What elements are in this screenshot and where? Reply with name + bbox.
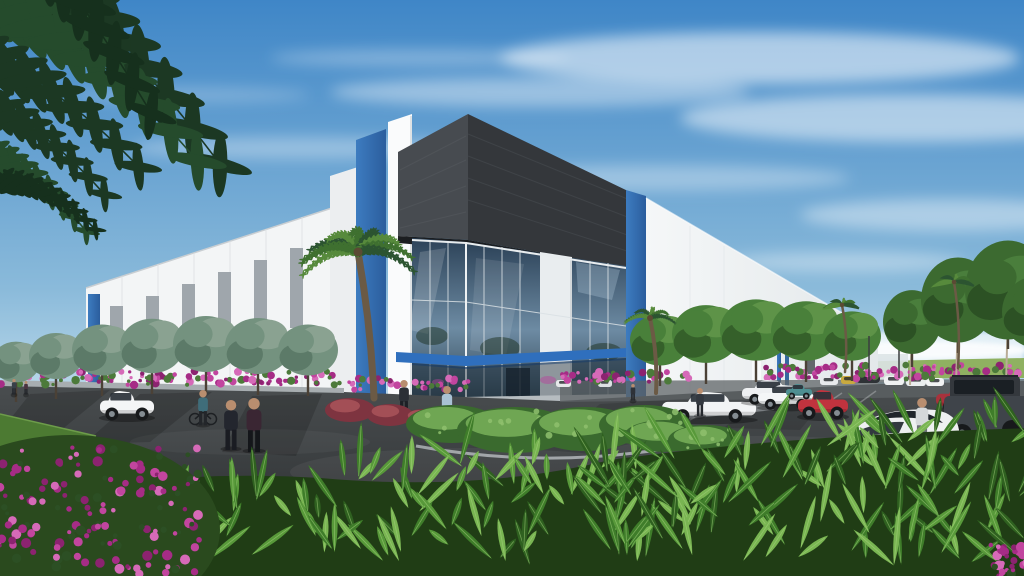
bougainvillea-hedge — [359, 376, 366, 383]
rendering-canvas — [0, 0, 1024, 576]
shrub-speckle — [438, 431, 441, 434]
bougainvillea-hedge — [295, 375, 298, 378]
shrub-speckle — [686, 446, 689, 449]
bougainvillea-bloom — [84, 505, 90, 511]
bougainvillea-hedge — [902, 362, 909, 369]
bougainvillea-hedge — [822, 364, 829, 371]
bougainvillea-bloom — [62, 551, 72, 561]
bougainvillea-hedge — [347, 380, 351, 384]
shrub-speckle — [700, 429, 707, 436]
bougainvillea-hedge — [314, 380, 318, 384]
bougainvillea-bloom — [61, 481, 68, 488]
bougainvillea-hedge — [932, 365, 936, 369]
tree-crown — [682, 310, 713, 337]
person-torso — [696, 394, 704, 405]
shrub-speckle — [667, 414, 672, 419]
bougainvillea-bloom — [115, 564, 125, 574]
car-wheel-rim — [109, 411, 115, 417]
bougainvillea-hedge — [164, 375, 172, 383]
bougainvillea-hedge — [328, 375, 332, 379]
bougainvillea-bloom — [101, 522, 109, 530]
bougainvillea-bloom — [74, 537, 83, 546]
bougainvillea-hedge — [1007, 369, 1013, 375]
bougainvillea-hedge — [569, 372, 576, 379]
person-leg — [14, 388, 15, 394]
bougainvillea-hedge — [186, 373, 193, 380]
bougainvillea-bloom — [1010, 557, 1017, 564]
red-leaf-shrub-highlight — [372, 405, 400, 417]
bougainvillea-hedge — [393, 381, 401, 389]
bougainvillea-bloom — [81, 496, 89, 504]
person-shadow — [220, 447, 241, 452]
bougainvillea-hedge — [968, 367, 972, 371]
car-wheel-rim — [732, 413, 738, 419]
bougainvillea-hedge — [940, 367, 944, 371]
bougainvillea-bloom — [157, 505, 163, 511]
bougainvillea-bloom — [108, 477, 113, 482]
bougainvillea-bloom — [12, 554, 21, 563]
bougainvillea-bloom — [125, 564, 130, 569]
bougainvillea-hedge — [837, 372, 843, 378]
bougainvillea-bloom — [107, 541, 112, 546]
shrub-speckle — [678, 421, 682, 425]
person-head — [226, 400, 237, 411]
bougainvillea-bloom — [136, 476, 144, 484]
tree-crown — [183, 321, 213, 347]
bougainvillea-bloom — [1009, 564, 1014, 569]
bougainvillea-bloom — [113, 541, 122, 550]
tree-crown — [731, 305, 763, 334]
bougainvillea-hedge — [682, 371, 689, 378]
bougainvillea-bloom — [165, 564, 170, 569]
bougainvillea-bloom — [96, 447, 102, 453]
bougainvillea-bloom — [194, 470, 202, 478]
bougainvillea-bloom — [182, 464, 187, 469]
bougainvillea-bloom — [95, 558, 105, 568]
palm-crown-base — [354, 248, 363, 257]
bougainvillea-bloom — [30, 549, 36, 555]
bougainvillea-hedge — [778, 363, 783, 368]
bougainvillea-hedge — [948, 370, 952, 374]
bougainvillea-bloom — [39, 485, 45, 491]
bougainvillea-hedge — [592, 372, 599, 379]
bougainvillea-hedge — [647, 380, 651, 384]
bougainvillea-bloom — [20, 449, 24, 453]
bougainvillea-hedge — [97, 380, 101, 384]
shrub-speckle — [672, 409, 679, 416]
bougainvillea-bloom — [99, 507, 106, 514]
person-head — [25, 381, 28, 384]
bougainvillea-bloom — [142, 551, 152, 561]
bougainvillea-hedge — [59, 378, 63, 382]
bougainvillea-hedge — [639, 369, 647, 377]
bougainvillea-bloom — [160, 527, 166, 533]
glass-flower-reflection — [540, 376, 556, 384]
person-head — [917, 398, 927, 408]
suv-windows — [954, 380, 1014, 394]
bougainvillea-bloom — [100, 541, 105, 546]
bougainvillea-bloom — [70, 445, 74, 449]
person-leg — [697, 405, 700, 416]
bougainvillea-hedge — [237, 378, 241, 382]
tree-crown — [235, 323, 265, 349]
bougainvillea-bloom — [146, 562, 152, 568]
bougainvillea-bloom — [186, 482, 190, 486]
bougainvillea-bloom — [185, 452, 190, 457]
bougainvillea-bloom — [112, 556, 120, 564]
bougainvillea-bloom — [992, 564, 998, 570]
bougainvillea-bloom — [27, 529, 35, 537]
bougainvillea-hedge — [564, 377, 570, 383]
bougainvillea-hedge — [763, 365, 769, 371]
bougainvillea-bloom — [191, 543, 199, 551]
car-wheel-rim — [752, 397, 757, 402]
person-leg — [199, 411, 202, 425]
bougainvillea-hedge — [172, 372, 177, 377]
tree-crown — [130, 324, 159, 350]
shrub-speckle — [554, 422, 559, 427]
bougainvillea-bloom — [5, 521, 12, 528]
bougainvillea-bloom — [173, 531, 178, 536]
bougainvillea-hedge — [359, 383, 362, 386]
car-window — [110, 393, 131, 401]
bougainvillea-bloom — [93, 456, 103, 466]
bougainvillea-bloom — [1004, 554, 1009, 559]
bougainvillea-bloom — [55, 505, 61, 511]
bougainvillea-bloom — [3, 493, 8, 498]
bougainvillea-bloom — [17, 461, 23, 467]
bougainvillea-bloom — [93, 493, 102, 502]
bougainvillea-hedge — [146, 382, 150, 386]
bougainvillea-hedge — [435, 383, 440, 388]
bougainvillea-bloom — [193, 445, 201, 453]
bougainvillea-hedge — [79, 370, 83, 374]
person-torso — [224, 411, 238, 431]
bougainvillea-bloom — [68, 455, 72, 459]
car-wheel-rim — [834, 410, 840, 416]
bougainvillea-hedge — [248, 376, 256, 384]
bougainvillea-bloom — [161, 488, 167, 494]
car-wheel-rim — [139, 411, 145, 417]
bougainvillea-bloom — [111, 508, 116, 513]
bougainvillea-bloom — [76, 525, 86, 535]
bougainvillea-bloom — [171, 565, 179, 573]
bougainvillea-hedge — [576, 371, 580, 375]
bougainvillea-bloom — [21, 538, 31, 548]
bougainvillea-hedge — [80, 376, 84, 380]
person-torso — [198, 397, 208, 411]
person-head — [248, 398, 259, 409]
bougainvillea-bloom — [139, 524, 145, 530]
person-torso — [12, 382, 16, 388]
palm-crown-base — [840, 303, 845, 308]
bougainvillea-bloom — [39, 498, 45, 504]
bougainvillea-hedge — [914, 373, 922, 381]
bougainvillea-hedge — [777, 371, 783, 377]
bougainvillea-hedge — [648, 373, 653, 378]
shrub-speckle — [630, 408, 634, 412]
car-wheel-rim — [805, 394, 808, 397]
bougainvillea-bloom — [1, 504, 7, 510]
shrub-speckle — [546, 432, 553, 439]
shrub-speckle — [534, 409, 540, 415]
car-wheel-rim — [768, 402, 773, 407]
bougainvillea-hedge — [451, 376, 458, 383]
bougainvillea-hedge — [982, 367, 990, 375]
shrub-speckle — [584, 424, 588, 428]
shrub-speckle — [498, 419, 503, 424]
bougainvillea-bloom — [130, 462, 138, 470]
person-leg — [204, 411, 207, 425]
bougainvillea-bloom — [53, 554, 60, 561]
car-window — [691, 394, 725, 402]
bougainvillea-hedge — [195, 375, 201, 381]
tree-crown — [287, 329, 314, 353]
shrub-mound-highlight — [674, 427, 727, 445]
bougainvillea-bloom — [84, 533, 89, 538]
person-leg — [701, 405, 704, 416]
bougainvillea-hedge — [932, 371, 936, 375]
person-leg — [24, 389, 25, 394]
bougainvillea-hedge — [384, 377, 389, 382]
bougainvillea-bloom — [189, 522, 194, 527]
entrance-door — [506, 368, 530, 398]
tree-crown — [782, 307, 814, 335]
tree-crown — [892, 302, 918, 325]
bougainvillea-hedge — [664, 369, 670, 375]
person-torso — [399, 387, 409, 401]
bougainvillea-bloom — [113, 533, 118, 538]
person-torso — [247, 409, 262, 431]
architectural-rendering — [0, 0, 1024, 576]
bougainvillea-hedge — [800, 375, 805, 380]
bougainvillea-hedge — [423, 385, 428, 390]
bougainvillea-hedge — [601, 373, 608, 380]
bougainvillea-bloom — [180, 555, 190, 565]
bougainvillea-bloom — [87, 529, 92, 534]
bougainvillea-hedge — [972, 368, 980, 376]
bougainvillea-bloom — [175, 490, 181, 496]
bougainvillea-hedge — [331, 381, 338, 388]
bougainvillea-hedge — [129, 376, 132, 379]
bougainvillea-bloom — [10, 471, 16, 477]
bougainvillea-bloom — [5, 511, 9, 515]
bougainvillea-bloom — [110, 445, 118, 453]
bougainvillea-bloom — [74, 553, 81, 560]
bougainvillea-bloom — [66, 506, 72, 512]
bougainvillea-bloom — [989, 543, 993, 547]
bougainvillea-bloom — [117, 486, 126, 495]
person-head — [443, 386, 451, 394]
bougainvillea-bloom — [183, 507, 187, 511]
palm-crown-base — [952, 280, 957, 285]
bougainvillea-bloom — [76, 462, 80, 466]
bougainvillea-hedge — [815, 376, 819, 380]
bougainvillea-hedge — [458, 387, 463, 392]
person-head — [199, 390, 206, 397]
bougainvillea-bloom — [87, 511, 92, 516]
person-torso — [631, 388, 636, 395]
bougainvillea-bloom — [24, 466, 30, 472]
glass-tree-reflection — [416, 327, 448, 345]
person-shadow — [243, 449, 266, 454]
bougainvillea-hedge — [267, 372, 275, 380]
bougainvillea-bloom — [81, 558, 89, 566]
car-window — [813, 392, 831, 400]
shrub-speckle — [710, 437, 714, 441]
shrub-speckle — [488, 419, 492, 423]
bougainvillea-hedge — [585, 377, 589, 381]
person-shadow — [23, 393, 29, 398]
bougainvillea-bloom — [172, 486, 177, 491]
bougainvillea-hedge — [463, 384, 468, 389]
cloud — [330, 77, 750, 107]
bougainvillea-hedge — [420, 380, 424, 384]
shrub-speckle — [442, 426, 447, 431]
bougainvillea-hedge — [126, 383, 130, 387]
bougainvillea-bloom — [196, 537, 202, 543]
person-leg — [12, 388, 13, 394]
car-wheel-rim — [806, 410, 812, 416]
bougainvillea-hedge — [904, 376, 909, 381]
shrub-speckle — [721, 438, 724, 441]
bougainvillea-bloom — [41, 478, 48, 485]
bougainvillea-bloom — [150, 532, 159, 541]
bougainvillea-hedge — [224, 378, 228, 382]
bougainvillea-hedge — [596, 379, 600, 383]
bougainvillea-hedge — [358, 387, 362, 391]
bougainvillea-hedge — [109, 379, 113, 383]
bougainvillea-hedge — [577, 380, 581, 384]
bougainvillea-bloom — [23, 492, 30, 499]
bougainvillea-hedge — [128, 370, 131, 373]
bougainvillea-hedge — [138, 379, 142, 383]
bougainvillea-hedge — [84, 374, 92, 382]
person-head — [12, 379, 15, 382]
bougainvillea-hedge — [815, 366, 822, 373]
bougainvillea-bloom — [156, 453, 163, 460]
bougainvillea-hedge — [287, 377, 295, 385]
bougainvillea-hedge — [872, 375, 876, 379]
person-leg — [633, 394, 634, 401]
bougainvillea-bloom — [8, 537, 16, 545]
bougainvillea-hedge — [429, 383, 435, 389]
person-shadow — [694, 414, 706, 419]
bougainvillea-bloom — [95, 524, 101, 530]
bougainvillea-hedge — [795, 367, 800, 372]
bougainvillea-bloom — [52, 562, 62, 572]
bougainvillea-hedge — [561, 375, 565, 379]
bougainvillea-hedge — [992, 366, 999, 373]
bougainvillea-hedge — [283, 379, 287, 383]
bougainvillea-hedge — [613, 379, 616, 382]
bougainvillea-bloom — [168, 501, 173, 506]
bougainvillea-bloom — [67, 530, 71, 534]
bougainvillea-hedge — [127, 379, 131, 383]
bougainvillea-hedge — [829, 364, 835, 370]
shrub-speckle — [716, 442, 720, 446]
bougainvillea-bloom — [136, 489, 145, 498]
bougainvillea-bloom — [162, 550, 172, 560]
bougainvillea-hedge — [625, 370, 631, 376]
bougainvillea-hedge — [268, 379, 272, 383]
cloud — [500, 32, 1020, 84]
bougainvillea-hedge — [51, 383, 54, 386]
bougainvillea-bloom — [101, 502, 106, 507]
bougainvillea-bloom — [177, 530, 181, 534]
bougainvillea-hedge — [207, 375, 214, 382]
bougainvillea-hedge — [71, 376, 79, 384]
bougainvillea-bloom — [51, 482, 59, 490]
car-window — [793, 385, 804, 389]
bougainvillea-bloom — [996, 544, 1001, 549]
person-leg — [26, 389, 27, 394]
bougainvillea-bloom — [149, 490, 156, 497]
person-shadow — [629, 399, 636, 404]
bougainvillea-bloom — [191, 568, 198, 575]
red-leaf-shrub-highlight — [330, 399, 360, 412]
bougainvillea-hedge — [886, 369, 890, 373]
bougainvillea-bloom — [74, 452, 79, 457]
person-head — [631, 384, 635, 388]
bougainvillea-hedge — [221, 383, 224, 386]
bougainvillea-hedge — [785, 367, 791, 373]
bougainvillea-hedge — [145, 376, 148, 379]
bougainvillea-bloom — [193, 510, 203, 520]
bougainvillea-hedge — [589, 379, 592, 382]
bougainvillea-bloom — [62, 493, 67, 498]
bougainvillea-hedge — [617, 377, 623, 383]
bougainvillea-bloom — [29, 497, 37, 505]
bougainvillea-hedge — [351, 386, 357, 392]
shrub-speckle — [425, 412, 431, 418]
bougainvillea-hedge — [921, 372, 929, 380]
bougainvillea-hedge — [858, 370, 866, 378]
car-wheel-rim — [790, 394, 793, 397]
bougainvillea-hedge — [412, 379, 419, 386]
bougainvillea-bloom — [153, 549, 158, 554]
tree-crown — [0, 345, 21, 364]
bougainvillea-bloom — [102, 475, 107, 480]
person-leg — [225, 430, 229, 450]
shrub-speckle — [587, 415, 592, 420]
bougainvillea-bloom — [158, 471, 168, 481]
person-leg — [255, 430, 260, 452]
bougainvillea-bloom — [74, 470, 81, 477]
bougainvillea-bloom — [54, 544, 61, 551]
person-head — [400, 380, 407, 387]
bougainvillea-bloom — [57, 461, 63, 467]
cloud — [270, 49, 570, 67]
person-torso — [24, 384, 28, 389]
bougainvillea-hedge — [185, 383, 189, 387]
tree-crown — [37, 337, 61, 359]
bougainvillea-hedge — [279, 383, 282, 386]
tree-crown — [81, 329, 108, 353]
person-leg — [232, 430, 236, 450]
bougainvillea-hedge — [1008, 364, 1012, 368]
bougainvillea-hedge — [130, 381, 138, 389]
bougainvillea-bloom — [155, 446, 161, 452]
bougainvillea-bloom — [18, 524, 27, 533]
bougainvillea-hedge — [466, 379, 471, 384]
bougainvillea-bloom — [122, 480, 129, 487]
person-head — [697, 388, 703, 394]
bougainvillea-hedge — [767, 369, 773, 375]
bougainvillea-hedge — [929, 375, 935, 381]
palm-crown-base — [647, 315, 653, 321]
person-shadow — [11, 393, 18, 398]
